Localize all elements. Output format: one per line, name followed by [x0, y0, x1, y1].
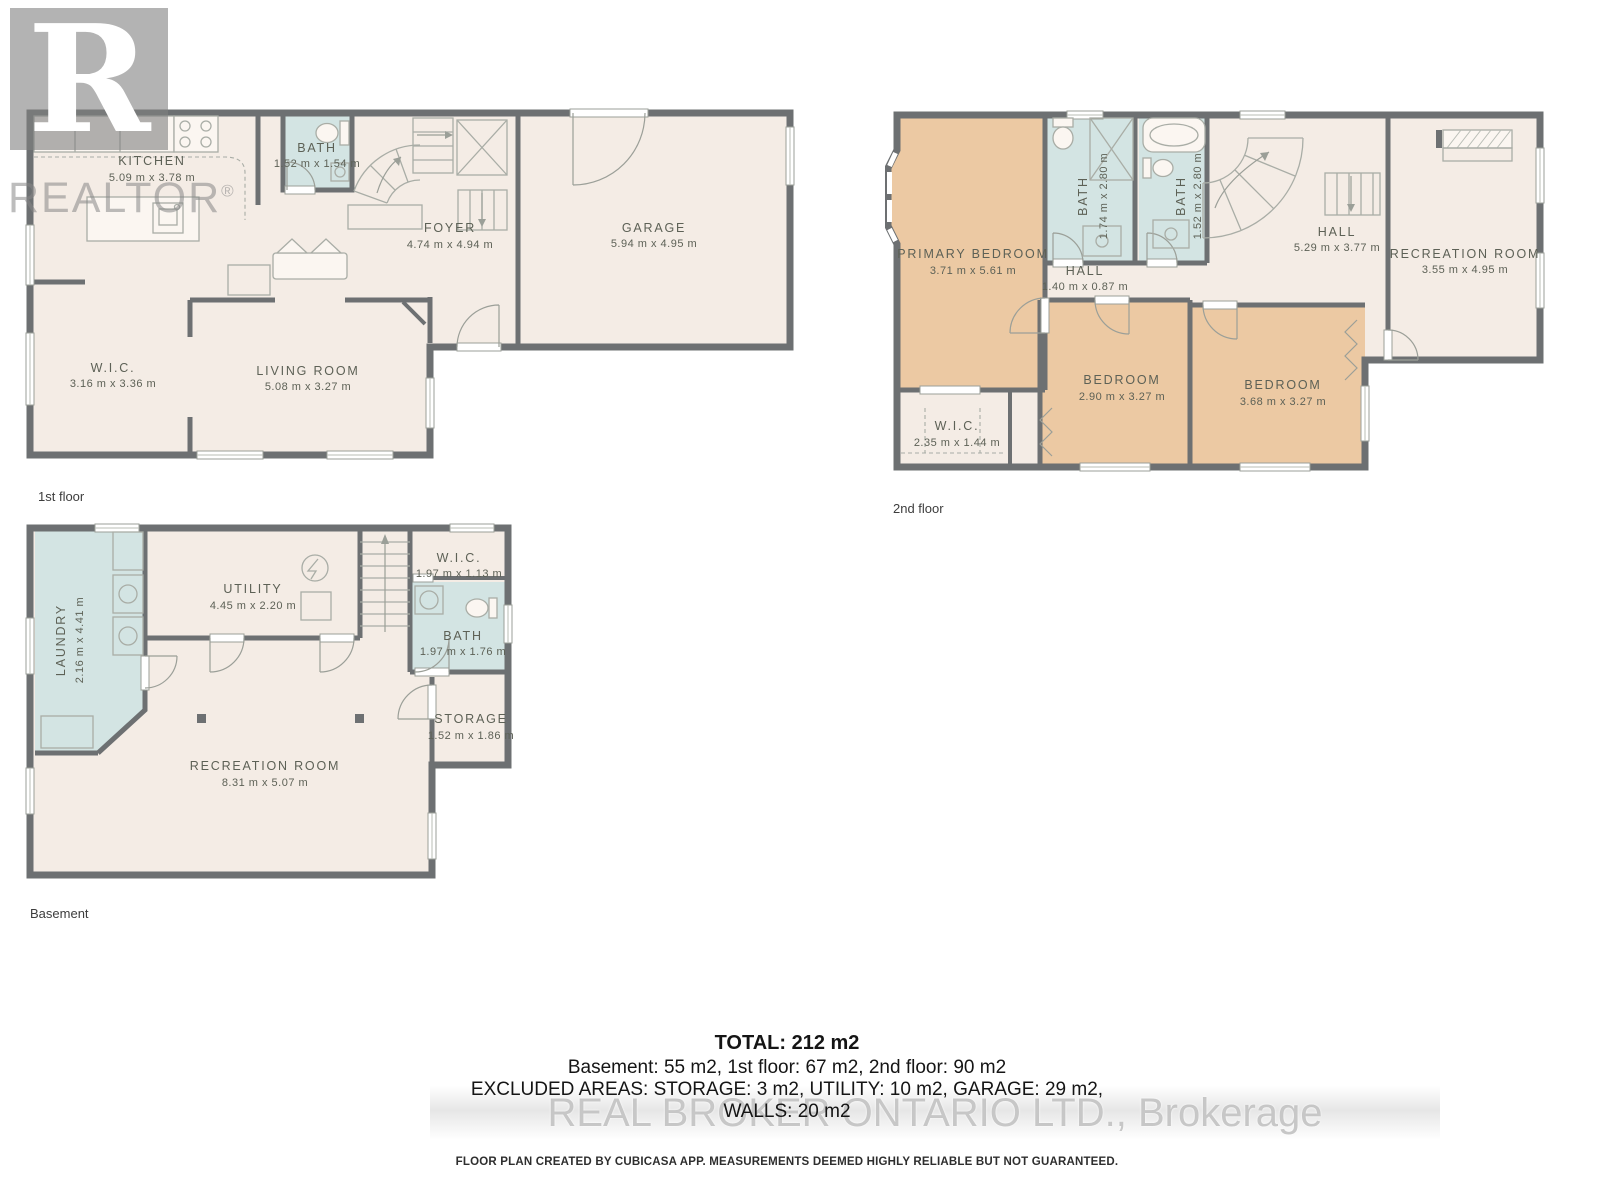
room-utility-dims: 4.45 m x 2.20 m	[210, 600, 296, 612]
floorplan-2nd-floor: PRIMARY BEDROOM 3.71 m x 5.61 m BATH 1.7…	[885, 108, 1545, 478]
room-bath2f-b-dims: 1.52 m x 2.80 m	[1192, 153, 1204, 239]
room-bath-bsmt	[410, 582, 508, 672]
room-hall-label: HALL	[1318, 225, 1356, 239]
room-laundry-label: LAUNDRY	[54, 604, 68, 676]
room-foyer-dims: 4.74 m x 4.94 m	[407, 239, 493, 251]
room-storage-label: STORAGE	[434, 712, 508, 726]
toilet-icon	[1143, 158, 1151, 178]
room-bedroom-a-dims: 2.90 m x 3.27 m	[1079, 391, 1165, 403]
room-garage-dims: 5.94 m x 4.95 m	[611, 238, 697, 250]
room-rec2f-label: RECREATION ROOM	[1390, 247, 1540, 261]
summary-walls: WALLS: 20 m2	[0, 1101, 1574, 1123]
room-living-label: LIVING ROOM	[256, 364, 359, 378]
toilet-icon	[489, 598, 497, 618]
toilet-icon	[1053, 118, 1073, 127]
room-laundry	[35, 530, 145, 753]
summary-per-floor: Basement: 55 m2, 1st floor: 67 m2, 2nd f…	[0, 1057, 1574, 1079]
room-wic-bsmt-dims: 1.97 m x 1.13 m	[416, 568, 502, 580]
room-rec-bsmt-label: RECREATION ROOM	[190, 759, 340, 773]
room-foyer-label: FOYER	[424, 221, 476, 235]
summary-total: TOTAL: 212 m2	[0, 1032, 1574, 1055]
floorplan-page: { "branding": { "realtor_logo_letter": "…	[0, 0, 1600, 1200]
room-primary-label: PRIMARY BEDROOM	[897, 247, 1049, 261]
room-wic1f-dims: 3.16 m x 3.36 m	[70, 378, 156, 390]
realtor-logo-letter: R	[28, 5, 151, 153]
basement-tag: Basement	[30, 906, 89, 921]
registered-mark: ®	[221, 182, 236, 201]
room-garage-label: GARAGE	[622, 221, 686, 235]
stove-icon	[174, 116, 218, 152]
room-utility-label: UTILITY	[223, 582, 282, 596]
realtor-logo-icon: R	[10, 8, 168, 150]
summary-excluded: EXCLUDED AREAS: STORAGE: 3 m2, UTILITY: …	[0, 1079, 1574, 1101]
room-living-dims: 5.08 m x 3.27 m	[265, 381, 351, 393]
room-bath-bsmt-label: BATH	[443, 629, 483, 643]
room-bath2f-b-label: BATH	[1174, 176, 1188, 216]
bathtub-icon	[1143, 118, 1205, 152]
room-bedroom-b-dims: 3.68 m x 3.27 m	[1240, 396, 1326, 408]
room-wic2f-label: W.I.C.	[935, 419, 980, 433]
toilet-icon	[340, 121, 349, 145]
realtor-watermark-text: REALTOR®	[8, 174, 236, 223]
room-wic-bsmt-label: W.I.C.	[437, 551, 482, 565]
room-wic1f-label: W.I.C.	[91, 361, 136, 375]
room-hall-small-dims: 1.40 m x 0.87 m	[1042, 281, 1128, 293]
room-hall-small-label: HALL	[1066, 264, 1104, 278]
room-rec-bsmt-dims: 8.31 m x 5.07 m	[222, 777, 308, 789]
room-primary-dims: 3.71 m x 5.61 m	[930, 265, 1016, 277]
floorplan-basement: LAUNDRY 2.16 m x 4.41 m UTILITY 4.45 m x…	[25, 520, 515, 880]
room-hall-dims: 5.29 m x 3.77 m	[1294, 242, 1380, 254]
disclaimer-text: FLOOR PLAN CREATED BY CUBICASA APP. MEAS…	[0, 1156, 1574, 1168]
room-rec2f-dims: 3.55 m x 4.95 m	[1422, 264, 1508, 276]
floor1-tag: 1st floor	[38, 489, 84, 504]
support-post	[355, 714, 364, 723]
room-bath1f-dims: 1.52 m x 1.54 m	[274, 158, 360, 170]
floor2-tag: 2nd floor	[893, 501, 944, 516]
room-bath-bsmt-dims: 1.97 m x 1.76 m	[420, 646, 506, 658]
support-post	[197, 714, 206, 723]
room-bath2f-a-dims: 1.74 m x 2.80 m	[1098, 153, 1110, 239]
room-bath2f-a-label: BATH	[1076, 176, 1090, 216]
room-bedroom-b-label: BEDROOM	[1244, 378, 1321, 392]
room-laundry-dims: 2.16 m x 4.41 m	[74, 597, 86, 683]
room-bath1f-label: BATH	[297, 141, 337, 155]
room-wic2f-dims: 2.35 m x 1.44 m	[914, 437, 1000, 449]
room-storage-dims: 1.52 m x 1.86 m	[428, 730, 514, 742]
room-bedroom-a-label: BEDROOM	[1083, 373, 1160, 387]
